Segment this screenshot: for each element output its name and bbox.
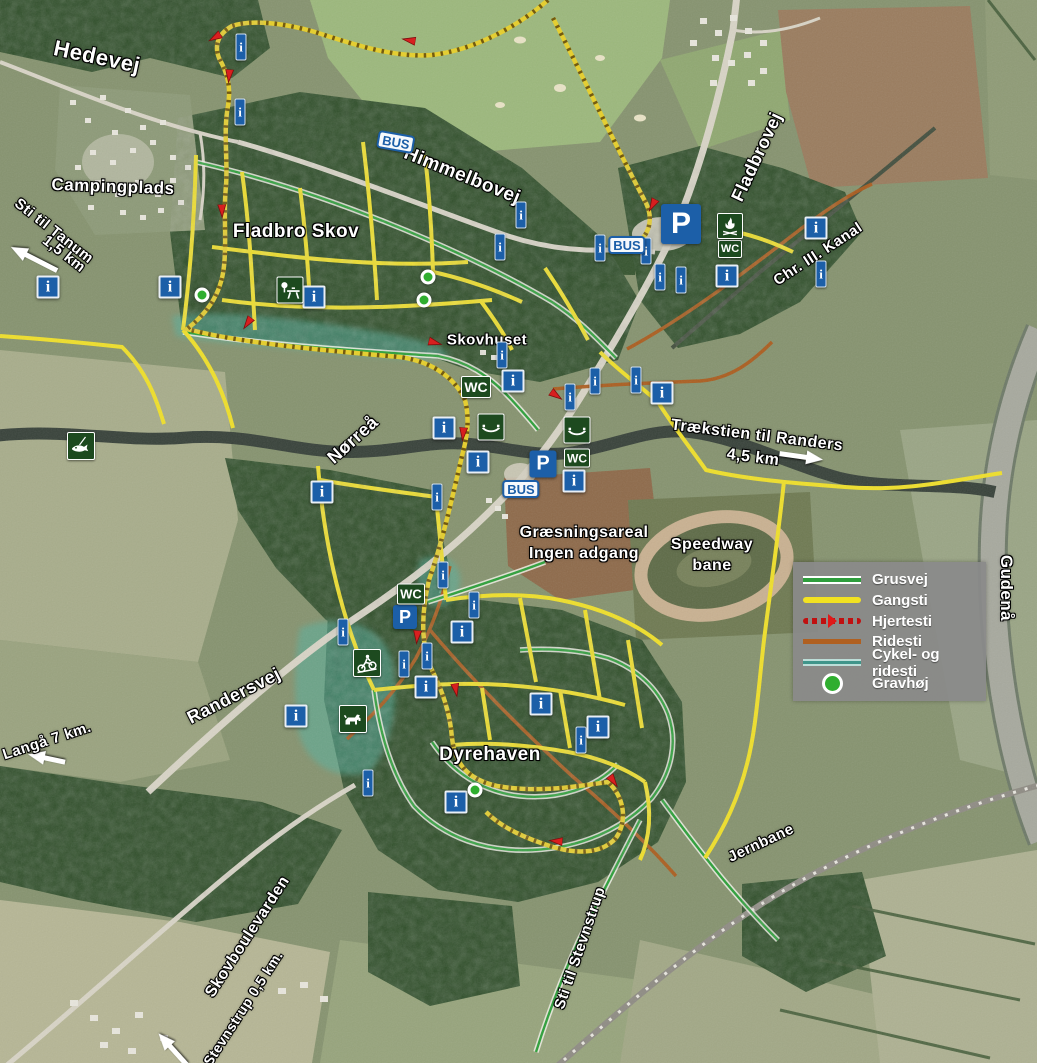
campfire-icon [717, 213, 743, 239]
info-icon: i [422, 643, 433, 670]
info-icon: i [530, 693, 553, 716]
bus-stop-sign: BUS [608, 236, 645, 254]
legend-swatch-cykel [803, 659, 861, 666]
picnic-area-icon [277, 277, 304, 304]
map-legend: GrusvejGangstiHjertestiRidestiCykel- og … [793, 562, 986, 701]
info-icon: i [236, 34, 247, 61]
mtb-track-icon [353, 649, 381, 677]
heart-route-arrow-icon [410, 630, 423, 646]
info-icon: i [467, 451, 490, 474]
info-icon: i [563, 470, 586, 493]
info-icon: i [469, 592, 480, 619]
parking-sign: P [661, 204, 701, 244]
legend-swatch-gravhoj [803, 673, 861, 694]
wc-sign: WC [397, 584, 425, 605]
info-icon: i [502, 370, 525, 393]
legend-label: Hjertesti [872, 613, 932, 630]
heart-route-arrow-icon [643, 197, 661, 216]
info-icon: i [565, 384, 576, 411]
info-icon: i [438, 562, 449, 589]
legend-item: Gravhøj [803, 674, 976, 693]
info-icon: i [451, 621, 474, 644]
legend-swatch-gangsti [803, 597, 861, 603]
info-icon: i [285, 705, 308, 728]
canoe-launch-icon [564, 417, 591, 444]
legend-label: Gangsti [872, 592, 928, 609]
legend-swatch-grusvej [803, 576, 861, 584]
info-icon: i [676, 267, 687, 294]
heart-route-arrow-icon [547, 834, 563, 847]
info-icon: i [595, 235, 606, 262]
parking-sign: P [530, 451, 557, 478]
heart-route-arrow-icon [427, 335, 445, 350]
info-icon: i [363, 770, 374, 797]
info-icon: i [651, 382, 674, 405]
info-icon: i [497, 342, 508, 369]
heart-route-arrow-icon [605, 772, 623, 791]
wc-sign: WC [461, 376, 491, 398]
heart-route-arrow-icon [400, 33, 417, 47]
info-icon: i [432, 484, 443, 511]
heart-route-arrow-icon [238, 314, 256, 333]
info-icon: i [816, 261, 827, 288]
info-icon: i [590, 368, 601, 395]
burial-mound-icon [421, 270, 436, 285]
info-icon: i [338, 619, 349, 646]
info-icon: i [495, 234, 506, 261]
info-icon: i [587, 716, 610, 739]
bus-stop-sign: BUS [376, 130, 416, 154]
legend-label: Grusvej [872, 571, 928, 588]
map-icons-layer: iiiiiiiiiiiiiiiiiiiiiiiiiiiiiiiiiiiiiiPP… [0, 0, 1037, 1063]
legend-swatch-ridesti [803, 639, 861, 644]
parking-sign: P [393, 605, 417, 629]
info-icon: i [445, 791, 468, 814]
info-icon: i [631, 367, 642, 394]
legend-item: Grusvej [803, 570, 976, 589]
heart-route-arrow-icon [205, 29, 224, 47]
info-icon: i [805, 217, 828, 240]
heart-route-arrow-icon [449, 683, 463, 700]
legend-label: Gravhøj [872, 675, 929, 692]
burial-mound-icon [417, 293, 432, 308]
heart-route-arrow-icon [216, 204, 229, 219]
info-icon: i [399, 651, 410, 678]
burial-mound-icon [468, 783, 483, 798]
heart-route-arrow-icon [456, 427, 469, 443]
heart-route-arrow-icon [222, 69, 235, 85]
legend-item: Gangsti [803, 591, 976, 610]
fishing-icon [67, 432, 95, 460]
info-icon: i [235, 99, 246, 126]
info-icon: i [159, 276, 182, 299]
wc-sign: WC [564, 449, 590, 468]
info-icon: i [303, 286, 326, 309]
burial-mound-icon [195, 288, 210, 303]
legend-item: Hjertesti [803, 612, 976, 631]
info-icon: i [716, 265, 739, 288]
info-icon: i [311, 481, 334, 504]
legend-swatch-hjertesti [803, 618, 861, 624]
bus-stop-sign: BUS [502, 480, 539, 498]
info-icon: i [415, 676, 438, 699]
trail-map: HedevejCampingpladsSti til Tanum1,5 kmFl… [0, 0, 1037, 1063]
canoe-launch-icon [478, 414, 505, 441]
info-icon: i [37, 276, 60, 299]
dog-forest-icon [339, 705, 367, 733]
wc-sign: WC [718, 240, 742, 258]
info-icon: i [433, 417, 456, 440]
legend-item: Cykel- og ridesti [803, 653, 976, 672]
info-icon: i [576, 727, 587, 754]
info-icon: i [655, 264, 666, 291]
info-icon: i [516, 202, 527, 229]
